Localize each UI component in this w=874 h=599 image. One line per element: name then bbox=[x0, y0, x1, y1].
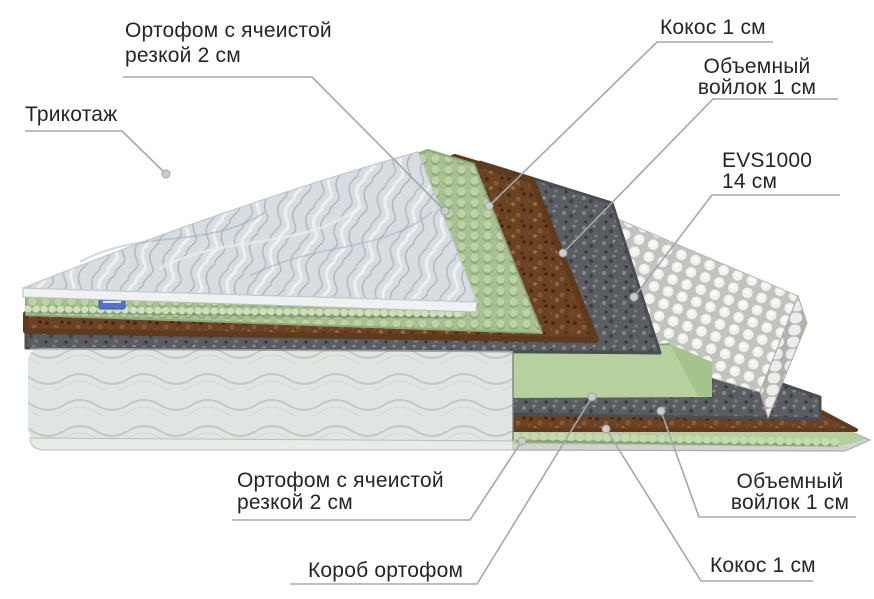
label-coconut-bottom: Кокос 1 см bbox=[710, 554, 816, 577]
top-fabric-layer bbox=[23, 152, 477, 312]
leader-dot bbox=[441, 207, 449, 215]
leader-dot bbox=[518, 437, 526, 445]
label-felt-top-line2: войлок 1 см bbox=[698, 76, 816, 99]
leader-dot bbox=[657, 407, 665, 415]
label-orthofoam-bottom-line2: резкой 2 см bbox=[237, 491, 353, 514]
label-coconut-top: Кокос 1 см bbox=[660, 16, 766, 39]
label-felt-bottom-line2: войлок 1 см bbox=[731, 491, 849, 514]
label-springs-line2: 14 см bbox=[722, 170, 777, 193]
label-trikotazh: Трикотаж bbox=[25, 103, 117, 126]
leader-trikotazh bbox=[25, 131, 170, 178]
label-orthofoam-top-line2: резкой 2 см bbox=[125, 44, 241, 67]
label-orthofoam-bottom-line1: Ортофом с ячеистой bbox=[237, 469, 444, 492]
label-orthofoam-top-line1: Ортофом с ячеистой bbox=[125, 19, 332, 42]
label-springs-line1: EVS1000 bbox=[722, 149, 812, 172]
leader-dot bbox=[162, 170, 170, 178]
leader-dot bbox=[630, 293, 638, 301]
leader-dot bbox=[559, 249, 567, 257]
leader-dot bbox=[602, 425, 610, 433]
leader-dot bbox=[485, 202, 493, 210]
leader-dot bbox=[588, 393, 596, 401]
label-felt-top-line1: Объемный bbox=[704, 55, 811, 78]
label-korob: Короб ортофом bbox=[308, 559, 463, 582]
mattress-diagram-svg: Трикотаж Ортофом с ячеистой резкой 2 см … bbox=[0, 0, 874, 599]
mattress-body-front bbox=[28, 348, 513, 450]
mattress-layers-diagram: Трикотаж Ортофом с ячеистой резкой 2 см … bbox=[0, 0, 874, 599]
label-felt-bottom-line1: Объемный bbox=[737, 470, 844, 493]
